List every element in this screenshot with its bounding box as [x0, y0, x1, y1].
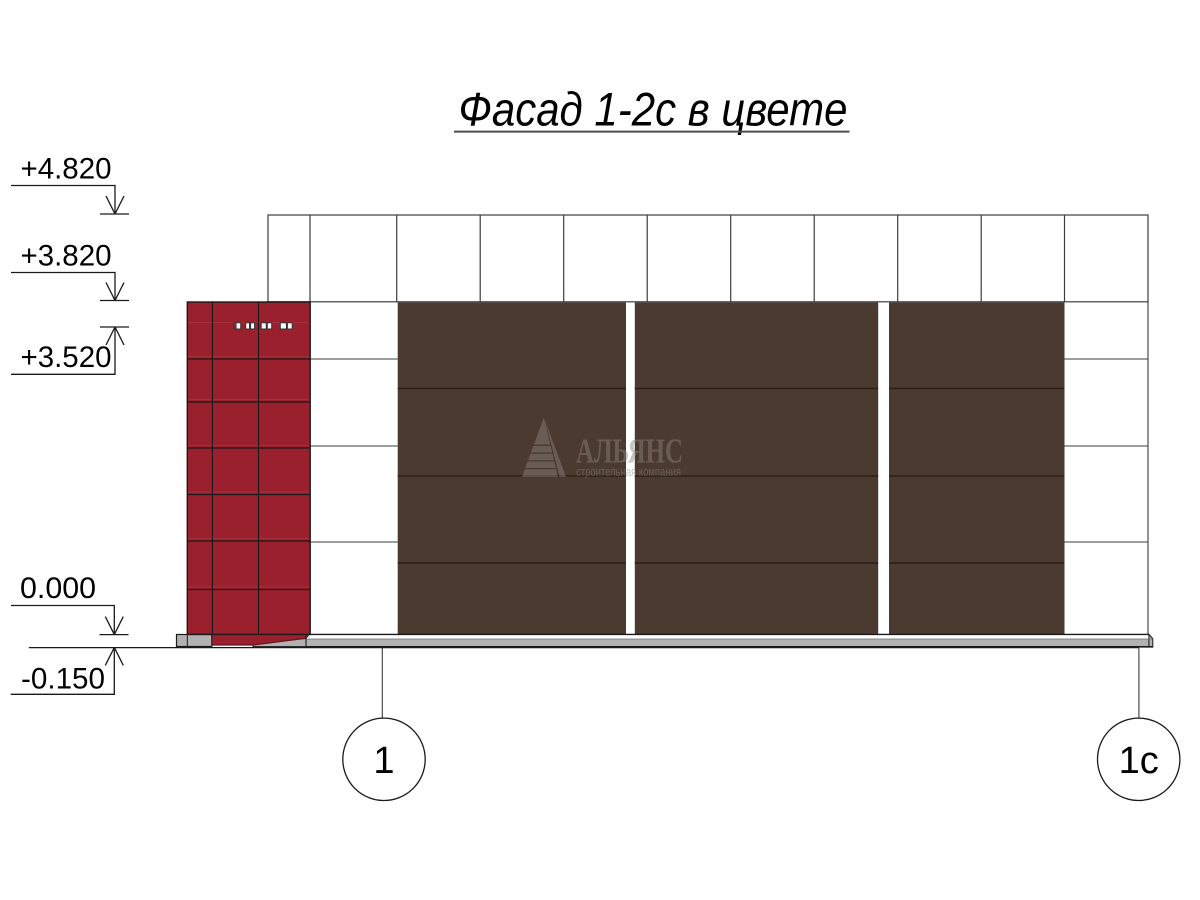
svg-text:строительная компания: строительная компания — [576, 465, 681, 479]
svg-text:1: 1 — [373, 740, 394, 782]
svg-text:+3.820: +3.820 — [21, 240, 112, 273]
svg-text:Фасад 1-2с в цвете: Фасад 1-2с в цвете — [459, 83, 848, 136]
svg-text:1с: 1с — [1119, 740, 1159, 782]
svg-text:-0.150: -0.150 — [21, 663, 105, 696]
svg-text:0.000: 0.000 — [20, 572, 96, 605]
svg-text:+4.820: +4.820 — [21, 153, 112, 186]
svg-text:+3.520: +3.520 — [21, 341, 112, 374]
